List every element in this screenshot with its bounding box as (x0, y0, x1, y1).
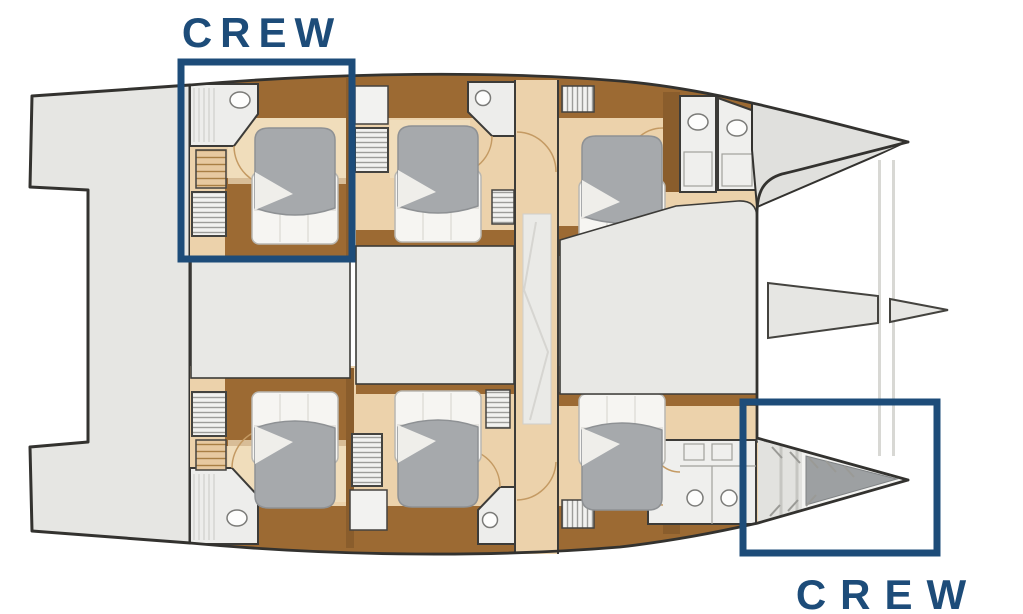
cabinet (355, 128, 388, 172)
double-bed (252, 392, 338, 508)
double-bed (579, 394, 665, 510)
bathroom (680, 96, 716, 192)
toilet-icon (230, 92, 250, 108)
cabinet (352, 434, 382, 486)
catamaran-floorplan: CREW CREW (0, 0, 1023, 614)
saloon-deck-panel (356, 246, 514, 384)
cabinet (492, 190, 514, 224)
double-bed (252, 128, 338, 244)
stairs (196, 150, 226, 188)
cabinet (350, 490, 387, 530)
saloon-deck-panel (191, 258, 350, 378)
crew-label-bottom: CREW (796, 571, 980, 614)
cabinet (192, 192, 226, 236)
toilet-icon (227, 510, 247, 526)
boat-diagram: CREW CREW (0, 0, 1023, 614)
cabinet (562, 86, 594, 112)
cabinet (355, 86, 388, 124)
toilet-icon (688, 114, 708, 130)
sink-icon (721, 490, 737, 506)
wood-trim (663, 92, 680, 192)
cabinet (192, 392, 226, 436)
central-corridor (515, 80, 558, 554)
cabinet (486, 390, 510, 428)
double-bed (395, 391, 481, 507)
sink-icon (476, 91, 491, 106)
toilet-icon (727, 120, 747, 136)
sink-icon (687, 490, 703, 506)
stairs (196, 440, 226, 470)
crew-label-top: CREW (182, 9, 342, 56)
double-bed (395, 126, 481, 242)
sink-icon (483, 513, 498, 528)
